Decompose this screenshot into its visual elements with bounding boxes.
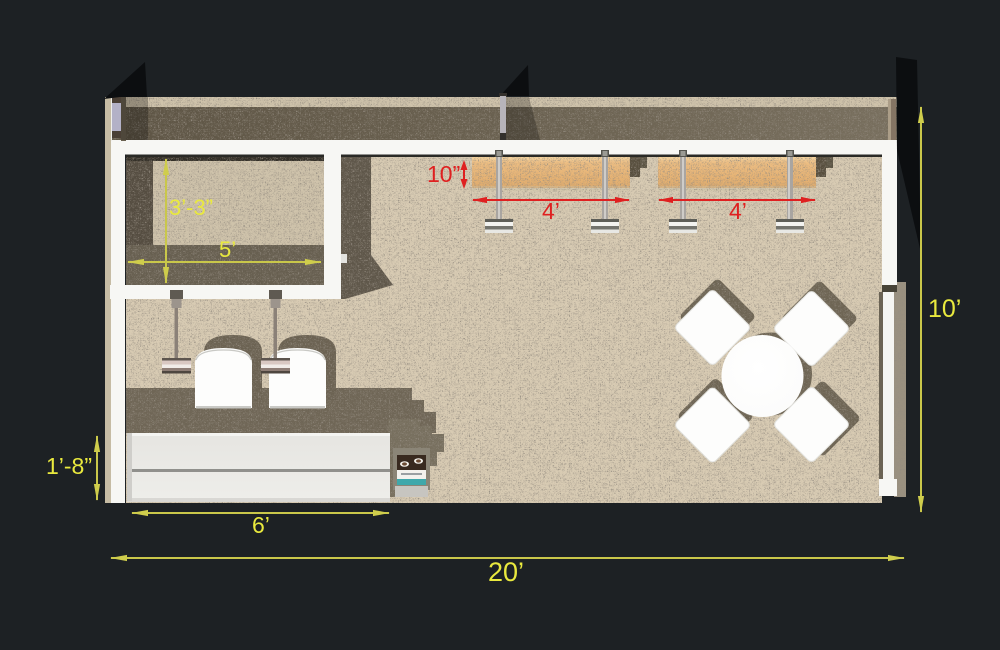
svg-text:5’: 5’ [219, 237, 236, 262]
svg-text:3’-3”: 3’-3” [169, 195, 213, 220]
svg-text:10”: 10” [427, 161, 460, 187]
svg-text:10’: 10’ [928, 295, 961, 323]
svg-text:1’-8”: 1’-8” [46, 453, 92, 479]
svg-text:20’: 20’ [488, 557, 524, 587]
svg-text:4’: 4’ [542, 198, 560, 224]
svg-text:6’: 6’ [252, 512, 270, 538]
svg-text:4’: 4’ [729, 198, 747, 224]
